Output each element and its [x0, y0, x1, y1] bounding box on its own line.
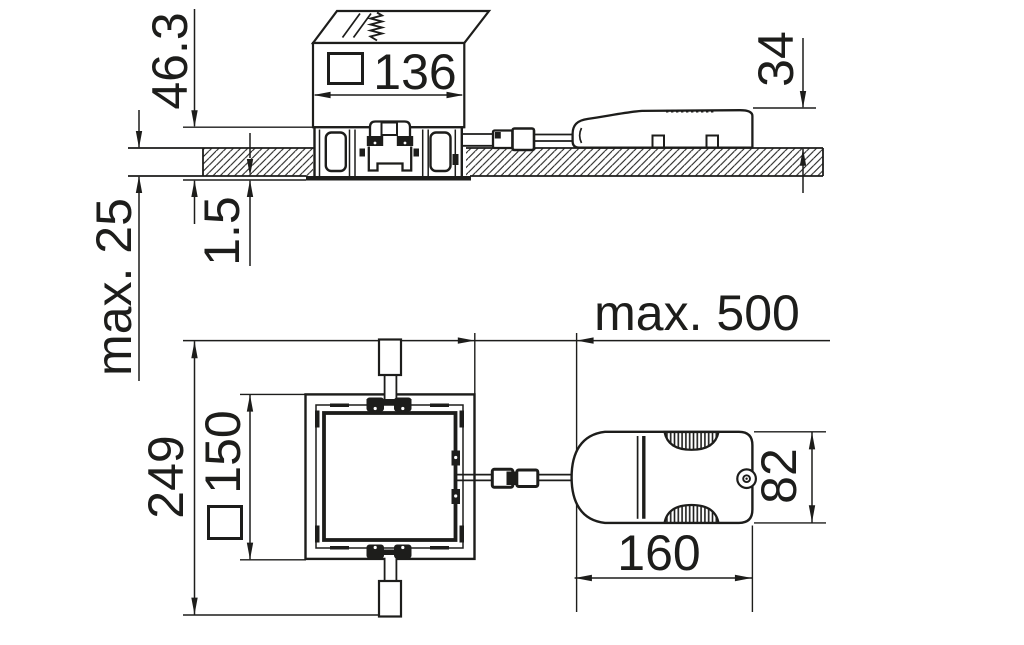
- plan-view: [183, 333, 830, 617]
- dim-label-recess-depth: 46.3: [142, 0, 198, 141]
- driver-side-view: [573, 110, 753, 147]
- dim-label-trim-protrusion: 1.5: [194, 181, 250, 281]
- recessed-mechanism-section: [306, 122, 471, 181]
- dim-label-driver-length: 160: [599, 525, 719, 581]
- dim-label-driver-height: 34: [748, 19, 804, 99]
- driver-plan-view: [572, 432, 756, 523]
- mounting-stem-top: [379, 340, 401, 400]
- dim-label-cable-length: max. 500: [587, 285, 807, 341]
- socket-connector-plan: [517, 470, 538, 487]
- dim-label-overall-length: 249: [138, 417, 194, 537]
- dim-label-driver-width: 82: [751, 426, 807, 526]
- square-section-symbol: [327, 52, 364, 85]
- cable-section: [462, 129, 572, 151]
- luminaire-plan: [306, 340, 475, 617]
- trim-flange: [306, 176, 471, 181]
- mounting-stem-bottom: [379, 556, 401, 617]
- spring-bracket-left: [326, 133, 346, 172]
- technical-drawing-canvas: 46.3 136 34 max. 25 1.5 249 150 max. 500…: [0, 0, 1024, 645]
- ceiling-section: [128, 148, 823, 176]
- dim-label-ceiling-thickness: max. 25: [86, 187, 142, 387]
- lamp-clamp-section: [367, 122, 413, 171]
- lamp-module: [324, 413, 456, 540]
- spring-bracket-right: [431, 133, 451, 172]
- socket-connector-section: [513, 129, 535, 151]
- dim-label-housing-width: 136: [365, 44, 465, 100]
- square-section-symbol: [207, 505, 243, 540]
- dim-label-cutout-square: 150: [195, 392, 251, 512]
